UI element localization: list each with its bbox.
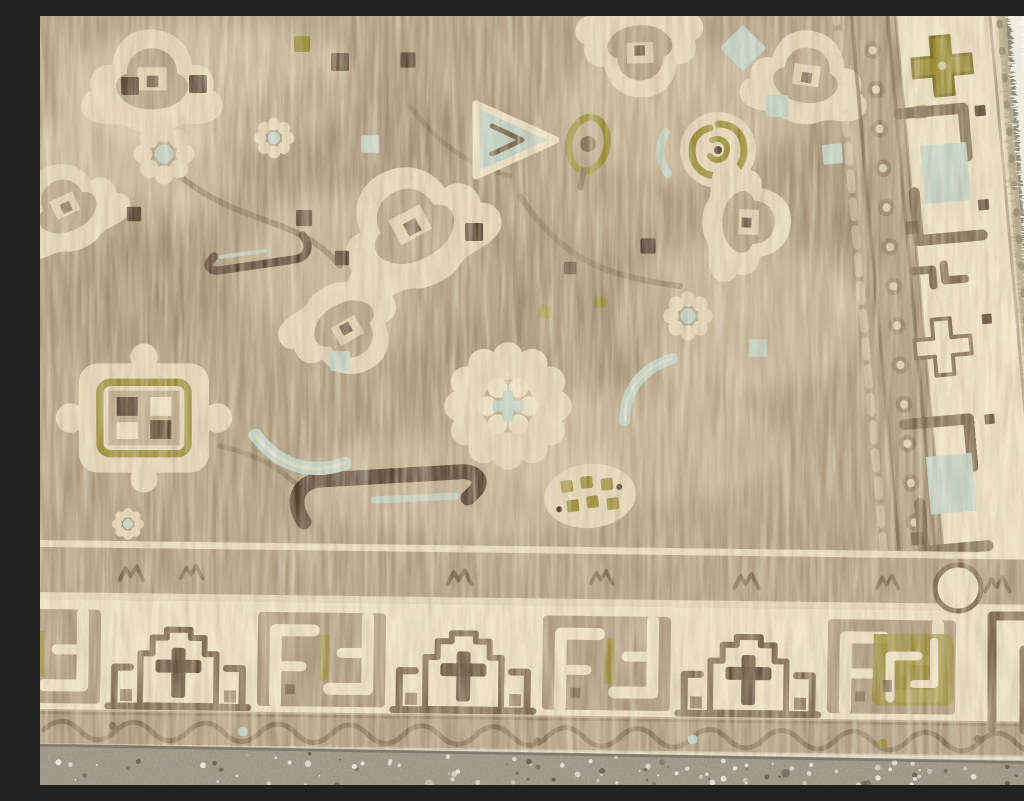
rug-texture-overlay <box>40 16 1024 785</box>
rug-photograph: Overhead photograph of the bottom-right … <box>40 16 1024 785</box>
rug <box>40 16 1024 785</box>
rug-photo-canvas: Close-up corner detail of an antique han… <box>40 16 1024 785</box>
